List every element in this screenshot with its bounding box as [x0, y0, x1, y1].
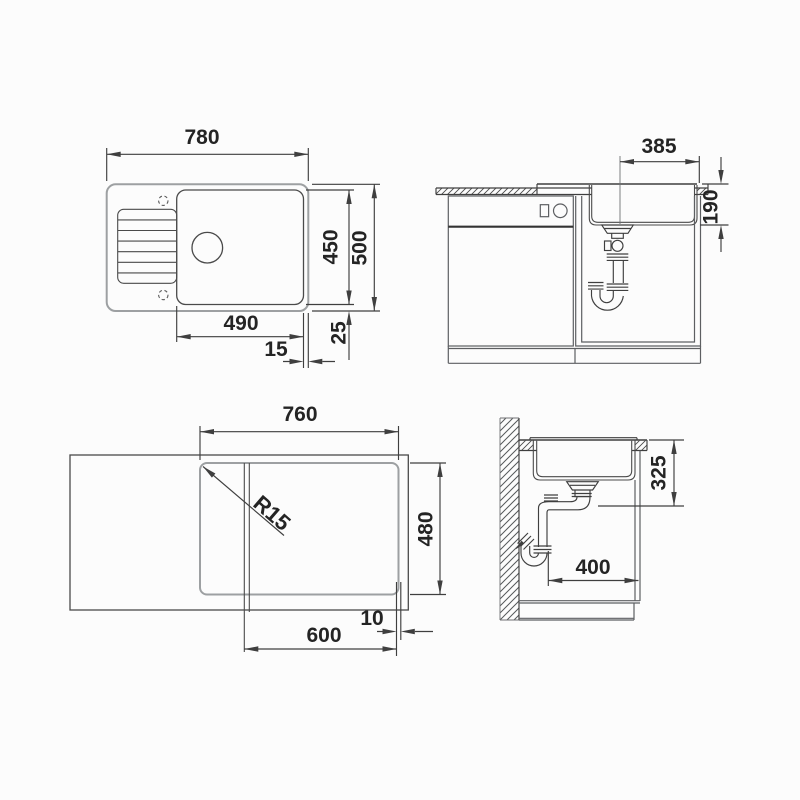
front-section-view: 385 190 — [436, 135, 729, 363]
cutout-plan-view: R15 760 480 600 10 — [70, 403, 446, 656]
dim-overall-width: 780 — [107, 126, 309, 181]
dim-bowl-height: 190 — [700, 157, 729, 252]
technical-drawing-canvas: 780 450 500 490 15 25 — [0, 0, 800, 800]
dim-label-760: 760 — [282, 403, 317, 426]
dim-label-490: 490 — [223, 312, 258, 335]
dim-drain-offset: 385 — [620, 135, 699, 183]
side-drain-trap — [514, 482, 598, 566]
dim-offset-right: 15 — [264, 313, 335, 368]
front-drain-trap — [588, 225, 633, 310]
dim-label-25: 25 — [328, 321, 351, 345]
tap-hole-bottom — [159, 290, 168, 299]
countertop-front — [436, 184, 708, 195]
dim-clearance: 400 — [548, 551, 638, 586]
dim-label-450: 450 — [320, 229, 343, 264]
dim-offset-bottom: 25 — [328, 311, 352, 360]
dim-label-15: 15 — [264, 338, 288, 361]
tap-hole-top — [159, 196, 168, 205]
sink-top-view: 780 450 500 490 15 25 — [107, 126, 380, 368]
countertop-side — [519, 438, 647, 451]
dim-bowl-depth: 450 — [306, 190, 354, 305]
control-button — [540, 205, 548, 217]
sink-outer-edge — [107, 184, 309, 311]
sink-base-cabinet-side — [519, 451, 640, 621]
drainboard — [118, 209, 177, 283]
sink-bowl-outline — [177, 190, 304, 305]
countertop-plan — [70, 455, 408, 610]
side-section-view: 325 400 — [500, 418, 684, 620]
dim-label-600: 600 — [306, 624, 341, 647]
dim-label-400: 400 — [575, 556, 610, 579]
dim-label-500: 500 — [349, 230, 372, 265]
dim-label-r15: R15 — [249, 490, 296, 535]
sink-base-cabinet-front — [576, 196, 701, 346]
dim-label-190: 190 — [700, 189, 723, 224]
dim-label-385: 385 — [641, 135, 676, 158]
dim-label-480: 480 — [415, 511, 438, 546]
radius-leader: R15 — [201, 464, 295, 535]
cutout-outline — [200, 463, 399, 595]
cabinet-wall-left-lines — [244, 463, 249, 652]
wall-section — [500, 418, 519, 620]
side-bowl — [533, 440, 635, 480]
dim-label-325: 325 — [648, 455, 671, 490]
control-knob — [554, 204, 568, 218]
sink-drawing-svg: 780 450 500 490 15 25 — [0, 0, 800, 800]
dim-label-780: 780 — [184, 126, 219, 149]
plinth-front — [448, 346, 700, 363]
dim-cutout-depth: 480 — [410, 463, 446, 595]
drain-hole — [192, 232, 223, 263]
dim-label-10: 10 — [360, 607, 383, 630]
dim-cutout-width: 760 — [200, 403, 399, 460]
front-bowl — [589, 156, 697, 225]
dishwasher-cabinet — [448, 196, 573, 346]
